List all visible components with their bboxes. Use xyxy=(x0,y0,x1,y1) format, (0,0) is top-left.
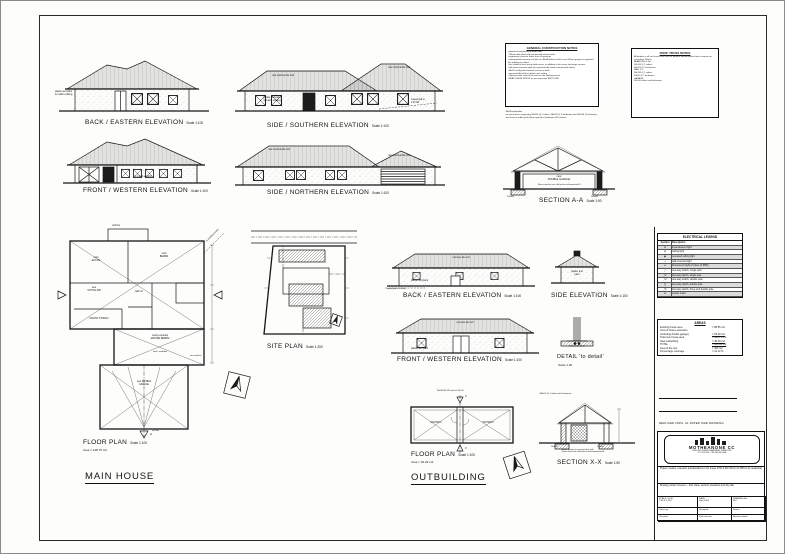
main-floor-area: Area = 148.75 m2 xyxy=(83,448,107,452)
footing-label: 200x600 xyxy=(551,446,557,448)
project-description: Project: revamp, extension and alteratio… xyxy=(658,466,765,483)
roof-note: new concrete tile roof xyxy=(259,149,299,152)
client-sig-cell: Client sig: xyxy=(658,508,698,515)
company-logo: MOTHEANONE CC BUILDING PLANS DRAWN AND S… xyxy=(664,435,760,464)
caption-outbuilding-back-elevation: BACK / EASTERN ELEVATIONScale 1:100 xyxy=(403,292,521,299)
caption-main-floor-plan: FLOOR PLANScale 1:100 xyxy=(83,439,147,446)
caption-side-southern-elevation: SIDE / SOUTHERN ELEVATIONScale 1:100 xyxy=(267,122,389,129)
signature-line xyxy=(659,411,737,412)
section-notes: -30mm screed on concrete floor slab -75m… xyxy=(561,449,637,454)
skyline-icon xyxy=(665,437,760,445)
drawing-content: Drawing content covered — floor plans, s… xyxy=(658,483,765,496)
room-label-bedrm: exist BEDRM xyxy=(144,253,184,258)
room-label: roof line xyxy=(152,430,159,432)
roof-note: new concrete tile roof xyxy=(379,155,419,158)
caption-section-aa: SECTION A-AScale 1:50 xyxy=(539,197,602,204)
wall-note: plaster and paint to match existing xyxy=(255,97,289,102)
outbuilding-side-elevation-drawing: plaster and paint xyxy=(549,247,607,291)
caption-site-plan: SITE PLANScale 1:200 xyxy=(267,343,323,350)
caption-back-eastern-elevation: BACK / EASTERN ELEVATIONScale 1:100 xyxy=(85,119,203,126)
roof-truss-notes: ROOF TRUSS NOTES All timbers to all roof… xyxy=(631,48,719,118)
areas-schedule: AREAS Existing house area= 85.55 m2 Area… xyxy=(657,319,743,356)
drawing-number-cell: DRAWING No: 010 xyxy=(732,497,766,508)
title-block-box: MOTHEANONE CC BUILDING PLANS DRAWN AND S… xyxy=(657,431,765,521)
checked-cell: Checked xyxy=(658,515,698,522)
electrical-legend: ELECTRICAL LEGEND Symbol Description ⊗In… xyxy=(657,233,743,298)
roofline-note: new roof line xyxy=(190,355,201,357)
caption-outbuilding-front-elevation: FRONT / WESTERN ELEVATIONScale 1:100 xyxy=(397,356,522,363)
main-northern-elevation-drawing: new concrete tile roof new concrete tile… xyxy=(233,133,447,189)
drawn-cell: Drawn xyxy=(732,508,766,515)
section-marker-x: X xyxy=(465,447,467,450)
caption-side-northern-elevation: SIDE / NORTHERN ELEVATIONScale 1:100 xyxy=(267,189,389,196)
plan-top-note: 38x38x110 SP laid to 1:40 fall xyxy=(437,390,517,392)
general-construction-notes: GENERAL CONSTRUCTION NOTES -plastered an… xyxy=(505,43,599,107)
title-block-table: SCALE: 1:100, 1:50 & 1:200 DATE: Sept 20… xyxy=(658,496,766,522)
outbuilding-title: OUTBUILDING xyxy=(411,472,486,485)
company-contact: P.O. BOX 000 · TEL 000 000 0000 xyxy=(665,452,759,454)
room-label-eatrm: exist EAT RM xyxy=(76,257,116,262)
wall-note: plaster and paint xyxy=(411,280,428,283)
revision-detail-cell: Revision detail xyxy=(732,515,766,522)
outbuilding-back-elevation-drawing: concrete tile roof plaster and paint pav… xyxy=(385,244,537,292)
section-aa-drawing: new DOUBLE GARAGE 30mm screed on conc sl… xyxy=(501,141,617,199)
room-label-master: newly extended MASTER BEDRM xyxy=(132,335,188,340)
wall-note: plaster and paint xyxy=(411,348,428,351)
drawing-sheet: plaster and paint to match existing BACK… xyxy=(0,0,785,554)
room-label-outrm1: OUTRM 1 xyxy=(421,422,451,425)
caption-front-western-elevation: FRONT / WESTERN ELEVATIONScale 1:100 xyxy=(83,187,208,194)
title-block: REDUCED 200%, A1 PAPER SIZE DRAWING MOTH… xyxy=(657,389,765,521)
caption-section-xx: SECTION X-XScale 1:50 xyxy=(557,459,620,466)
garage-room-label: new DOUBLE GARAGE xyxy=(535,175,583,181)
main-house-title: MAIN HOUSE xyxy=(85,471,154,484)
room-label-outrm2: OUTRM 2 xyxy=(473,422,503,425)
caption-outbuilding-floor-plan: FLOOR PLANScale 1:100 xyxy=(411,451,475,458)
legend-row: ⊖socket outlet xyxy=(658,292,742,297)
section-marker-a: A xyxy=(150,433,152,437)
scale-cell: SCALE: 1:100, 1:50 & 1:200 xyxy=(658,497,698,508)
section-marker-x: X xyxy=(465,395,467,398)
elevation-note: plaster and paint to match existing xyxy=(55,91,77,96)
signature-line xyxy=(659,398,737,399)
caption-detail: DETAIL 'to detail' xyxy=(557,354,604,360)
date-cell: DATE: Sept 2003 xyxy=(698,497,732,508)
room-label-bath: bath rm xyxy=(128,291,150,294)
ground-note: paving laid to 1:40 fall xyxy=(387,288,405,290)
room-label-porch: FRONT PORCH xyxy=(78,317,120,320)
north-arrow-icon xyxy=(221,369,253,401)
outbuilding-front-elevation-drawing: concrete tile roof plaster and paint xyxy=(389,311,541,357)
section-top-note: -38x114 @ 1 rafters and tie-beams. xyxy=(539,393,635,395)
main-back-elevation-drawing: plaster and paint to match existing xyxy=(57,53,211,117)
room-label-sitting: new SITTING RM xyxy=(74,287,114,292)
designed-cell: Designed xyxy=(698,508,732,515)
main-southern-elevation-drawing: new concrete tile roof new concrete tile… xyxy=(233,51,447,119)
fall-note: screed laid to 1:40 fall xyxy=(411,99,439,104)
wall-note: plaster and paint xyxy=(563,271,591,276)
room-label: roof line xyxy=(112,225,120,228)
general-notes-extra: -38x38 wall-plates -on roof trusses comp… xyxy=(505,111,605,119)
outbuilding-floor-plan-drawing: OUTRM 1 OUTRM 2 38x38x110 SP laid to 1:4… xyxy=(407,395,519,453)
room-label-garage: new DOUBLE GARAGE xyxy=(120,381,168,386)
date-revised-cell: Date revised xyxy=(698,515,732,522)
roof-note: concrete tile roof xyxy=(445,322,485,325)
area-row: Percentage coverage= 41.12 % xyxy=(660,350,740,353)
outbuilding-floor-area: Area = 36.29 m2 xyxy=(411,460,433,464)
site-plan-drawing xyxy=(251,228,357,340)
reduced-note: REDUCED 200%, A1 PAPER SIZE DRAWING xyxy=(659,421,724,425)
main-floor-plan-drawing: roof line exist BEDRM exist EAT RM bath … xyxy=(56,225,226,441)
main-front-elevation-drawing: to match existing xyxy=(61,131,213,187)
footing-label: 200x600 xyxy=(507,196,514,198)
roof-note: new concrete tile roof xyxy=(263,75,303,78)
detail-scale: Scale 1:20 xyxy=(558,363,572,367)
footing-label: 200x600 xyxy=(597,446,603,448)
floor-note: 30mm screed on conc slab laid on well-co… xyxy=(529,184,589,186)
column-divider xyxy=(654,227,655,541)
room-label-wardrobe: exist | wardrobe xyxy=(136,351,184,353)
section-xx-drawing: -38x114 @ 1 rafters and tie-beams. -30mm… xyxy=(535,389,639,457)
roof-note: concrete tile roof xyxy=(441,257,481,260)
north-arrow-icon xyxy=(501,449,533,481)
wall-note: to match existing xyxy=(123,176,163,179)
roof-note: new concrete tile roof xyxy=(379,67,419,70)
detail-drawing xyxy=(557,315,597,355)
caption-outbuilding-side-elevation: SIDE ELEVATIONScale 1:100 xyxy=(551,292,628,299)
